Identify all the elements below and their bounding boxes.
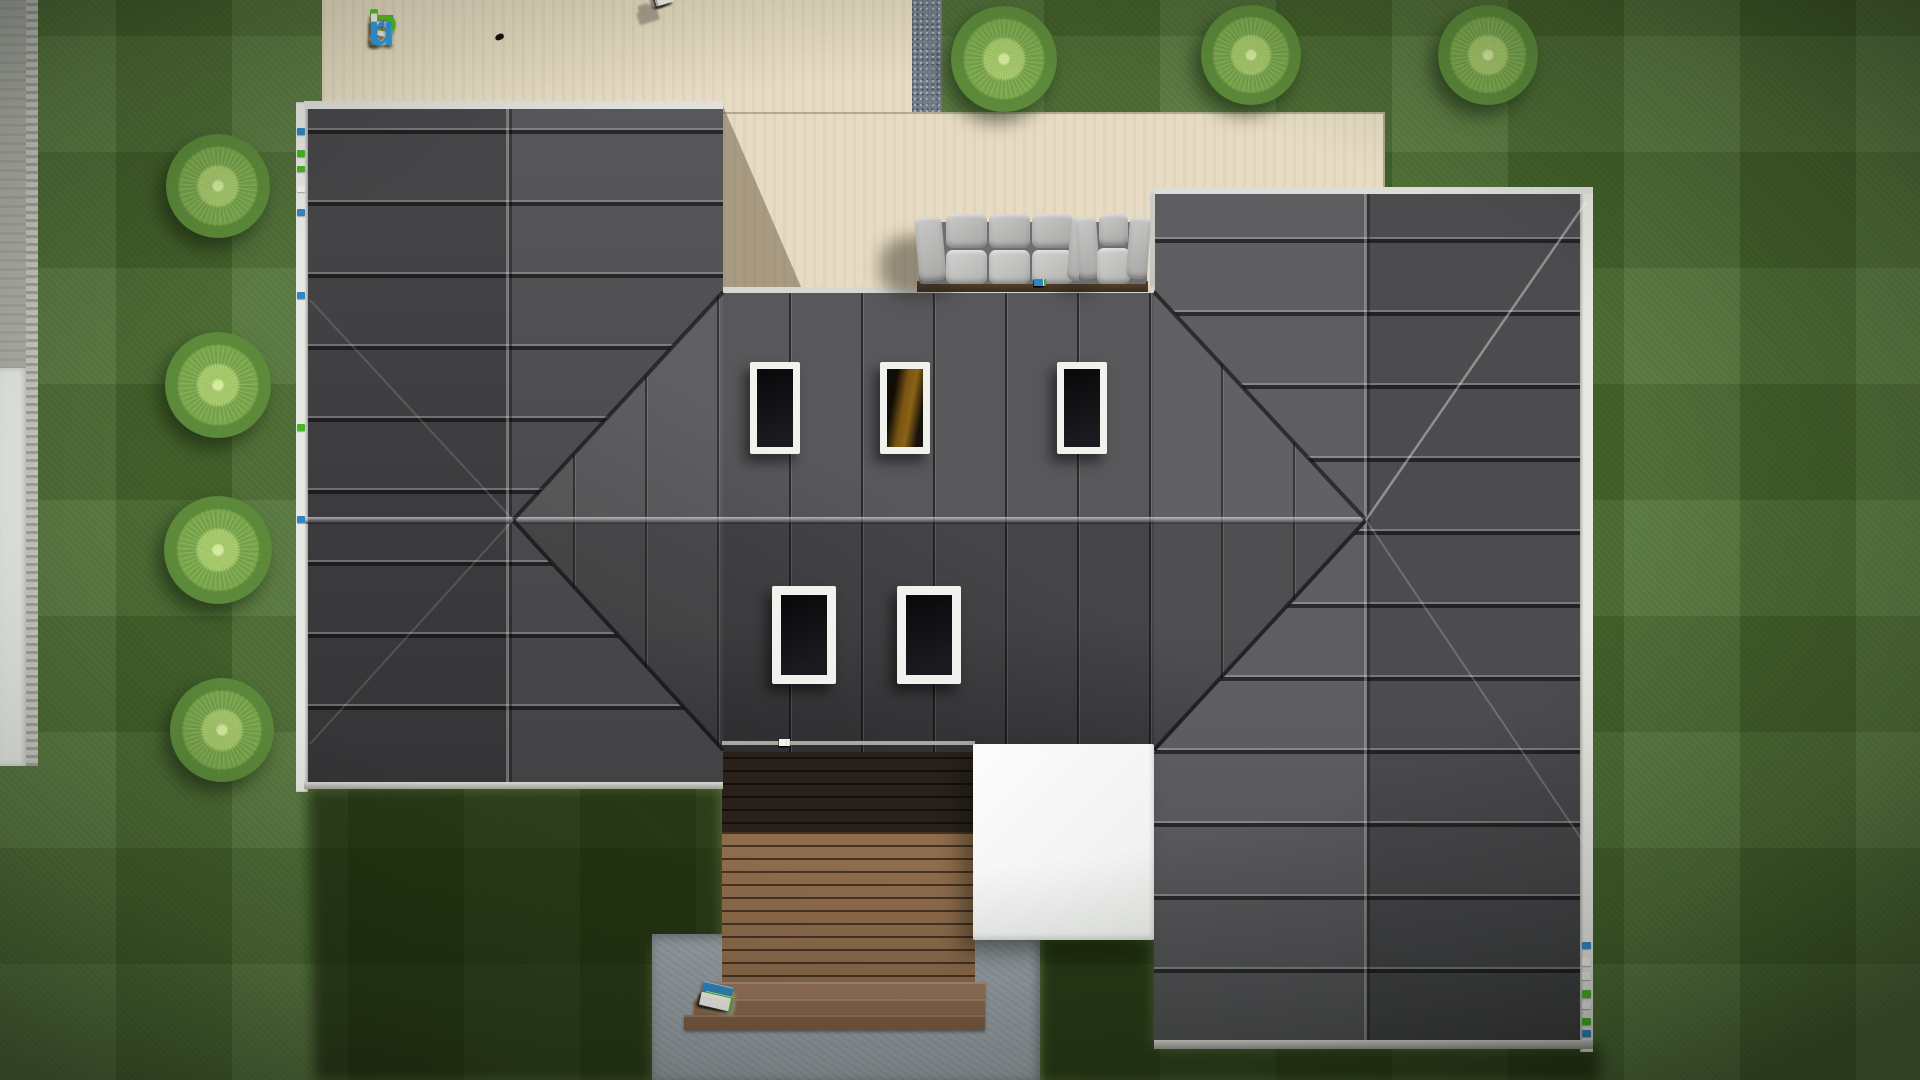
skylight: [897, 586, 961, 684]
watermark-dot: [1582, 1018, 1591, 1025]
watermark-dot: [1582, 942, 1591, 949]
sofa-seat-cushion: [946, 250, 987, 284]
sofa-arm-cushion: [914, 216, 946, 282]
outdoor-sofa: [917, 214, 1095, 288]
skylight: [772, 586, 836, 684]
outdoor-armchair: [1077, 214, 1149, 288]
watermark-dot: [297, 186, 305, 192]
skylight: [1057, 362, 1107, 454]
watermark-dot: [1582, 958, 1591, 966]
skylight: [750, 362, 800, 454]
watermark-dot: [297, 150, 305, 157]
hip-face: [513, 292, 723, 750]
watermark-dot: [297, 128, 305, 135]
watermark-dot: [297, 292, 305, 299]
watermark-dot: [1582, 972, 1591, 980]
sofa-seat-cushion: [989, 250, 1030, 284]
watermark-dot: [1582, 990, 1591, 998]
watermark-block: [779, 739, 786, 746]
armchair-back-cushion: [1099, 214, 1128, 246]
skylight-glass: [1064, 369, 1100, 447]
sofa-back-cushion: [1032, 214, 1073, 248]
watermark-dot: [297, 209, 305, 216]
hip-line: [1366, 520, 1586, 846]
sofa-back-cushion: [946, 214, 987, 248]
hip-line: [310, 300, 513, 520]
watermark-dot: [1582, 1030, 1591, 1037]
armchair-seat-cushion: [1097, 248, 1130, 284]
watermark-dot: [297, 166, 305, 172]
white-canopy: [973, 744, 1154, 940]
skylight-glass: [906, 595, 952, 675]
logo-letter: u: [368, 6, 396, 56]
skylight-glass: [887, 369, 923, 447]
sofa-back-cushion: [989, 214, 1030, 248]
skylight: [880, 362, 930, 454]
aerial-house-render: FıxPlans.ru: [0, 0, 1920, 1080]
skylight-glass: [781, 595, 827, 675]
watermark-dot: [297, 424, 305, 431]
watermark-dot: [297, 516, 305, 523]
skylight-glass: [757, 369, 793, 447]
watermark-dot: [1582, 1002, 1591, 1009]
hip-face: [1154, 292, 1366, 750]
hip-line: [310, 520, 513, 744]
armchair-arm-cushion: [1126, 216, 1151, 279]
roof-line-layer: [0, 0, 1920, 1080]
watermark-block: [1034, 279, 1043, 286]
hip-line: [1366, 202, 1586, 520]
